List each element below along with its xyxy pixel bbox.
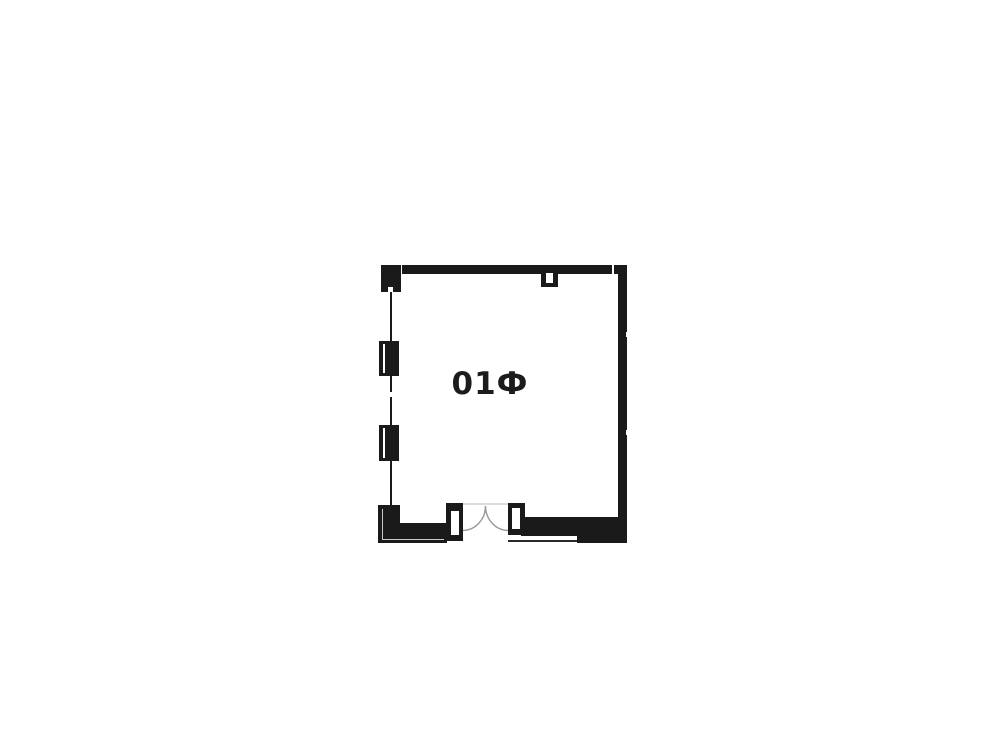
window-pillar-lower-highlight	[383, 428, 385, 458]
door-jamb-left-slot	[451, 511, 459, 535]
wall-bottom-right	[521, 517, 627, 537]
room-label: 01Ф	[445, 367, 535, 403]
wall-bottom-right-underline	[508, 540, 577, 542]
wall-top	[382, 265, 627, 274]
window-line-4	[390, 461, 392, 507]
wall-top-joint-right-tick	[612, 265, 614, 274]
wall-top-joint-left-tick	[401, 265, 402, 274]
corner-block-bottom-left-highlight-bottom	[382, 539, 444, 541]
window-pillar-lower	[379, 425, 399, 461]
floorplan-canvas: 01Ф	[0, 0, 1000, 750]
window-line-3	[390, 397, 392, 426]
door-jamb-right-slot	[512, 508, 520, 529]
window-line-1	[390, 292, 392, 341]
wall-right-joint-tick-2	[626, 430, 627, 435]
corner-block-bottom-left-highlight-left	[382, 509, 384, 540]
wall-notch-top-slot	[546, 273, 553, 283]
wall-bottom-right-underhang	[577, 536, 627, 543]
window-pillar-upper	[379, 341, 399, 376]
wall-right-joint-tick-1	[626, 332, 627, 337]
window-line-2	[390, 376, 392, 392]
window-pillar-upper-highlight	[383, 344, 385, 373]
wall-right	[618, 265, 628, 543]
